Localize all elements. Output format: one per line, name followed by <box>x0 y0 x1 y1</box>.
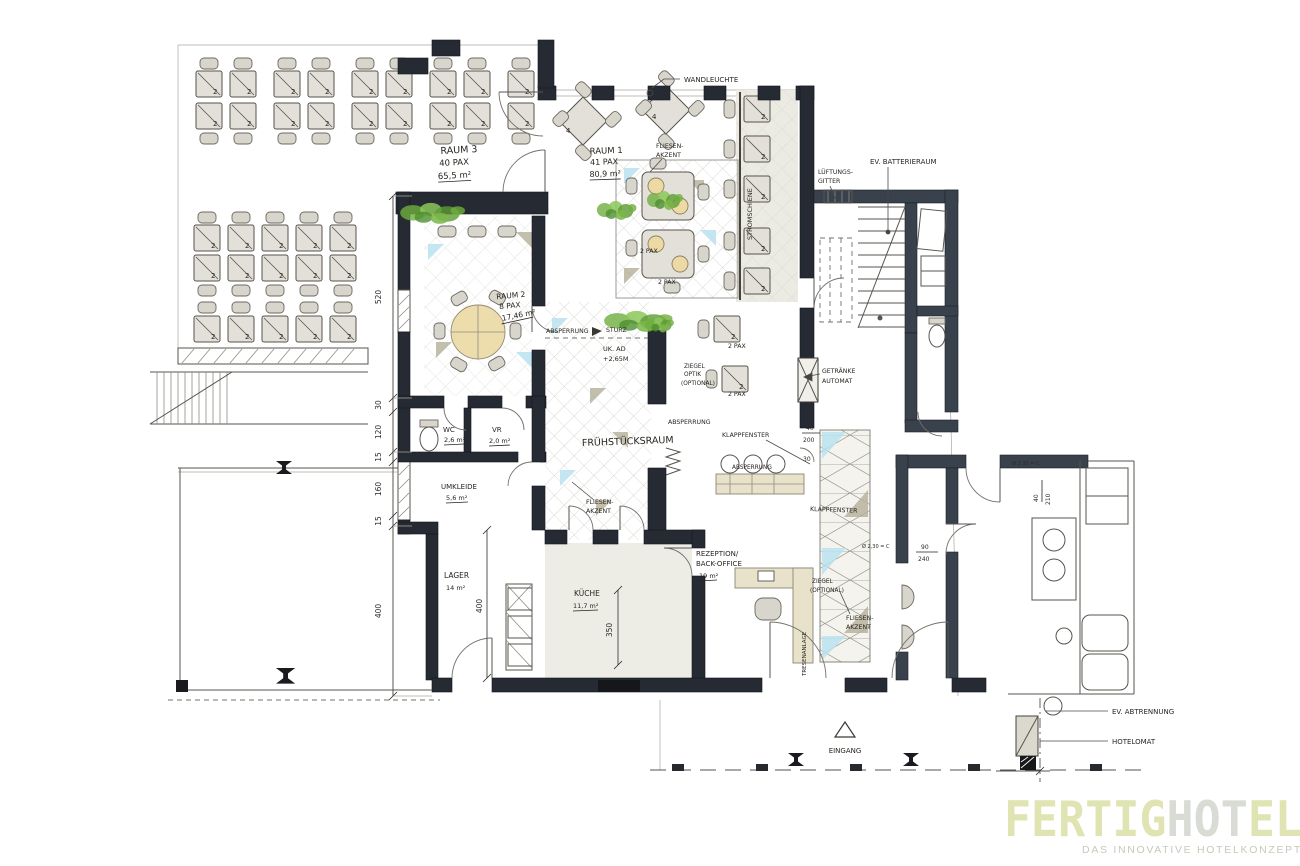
label-4pax: 4 <box>652 113 657 121</box>
label-ziegel-optik: OPTIK <box>684 372 701 378</box>
dim-chain-520: 520 <box>374 290 383 305</box>
label-klappfenster-2: KLAPPFENSTER <box>810 506 858 515</box>
room-umkleide-area: 5,6 m² <box>446 494 468 502</box>
label-getraenkeautomat: GETRÄNKE <box>822 366 855 375</box>
label-fliesen-akzent-3: FLIESEN- <box>846 615 873 622</box>
buffet-counter <box>716 455 804 494</box>
room-raum1-pax: 41 PAX <box>590 157 619 167</box>
label-ziegel-optik: (OPTIONAL) <box>681 381 715 387</box>
dim-door-40b: 40 <box>1033 494 1040 502</box>
label-uk-ad-value: +2,65M <box>603 355 629 363</box>
label-stromschiene: STROMSCHIENE <box>746 188 754 240</box>
dim-chain-120: 120 <box>374 425 383 440</box>
fertighotel-logo: FERTIGHOTEL DAS INNOVATIVE HOTELKONZEPT <box>980 797 1300 856</box>
entrance <box>650 722 1148 771</box>
label-absperrung-1: ABSPERRUNG <box>546 328 589 335</box>
lager-shelving <box>506 584 532 670</box>
room-rezeption-name: BACK-OFFICE <box>696 560 742 568</box>
logo-wordmark: FERTIGHOTEL <box>980 795 1300 844</box>
dim-ok230: Ø 2,30 = C <box>862 543 890 550</box>
room-lager-area: 14 m² <box>446 584 466 592</box>
room-raum3-pax: 40 PAX <box>439 157 469 169</box>
dim-chain-160: 160 <box>374 482 383 497</box>
label-fliesen-akzent-2: AKZENT <box>586 508 611 515</box>
room-raum2-pax: 8 PAX <box>499 300 521 311</box>
right-room-furniture <box>917 209 947 286</box>
label-batterieraum: EV. BATTERIERAUM <box>870 158 937 166</box>
room-kueche-name: KÜCHE <box>574 589 600 598</box>
coil-symbol <box>666 448 680 475</box>
raum3-hatch-wall <box>178 348 368 364</box>
label-2pax: 2 PAX <box>728 391 746 398</box>
optional-rooms <box>1008 461 1134 694</box>
label-lueftungsgitter: GITTER <box>818 178 841 185</box>
stairs <box>858 207 905 328</box>
label-fliesen-akzent-2: FLIESEN- <box>586 499 613 506</box>
batterieraum-dashed <box>820 238 852 322</box>
label-absperrung-3: ABSPERRUNG <box>732 465 772 471</box>
logo-hot: HOT <box>1167 791 1248 848</box>
label-uk-ad: UK. AD <box>603 345 626 353</box>
dim-lager-400: 400 <box>475 599 484 614</box>
logo-fertig: FERTIG <box>1004 791 1167 848</box>
logo-el: EL <box>1248 791 1300 848</box>
label-2pax: 2 PAX <box>658 279 676 286</box>
room-wc-name: WC <box>443 426 455 434</box>
label-wandleuchte: WANDLEUCHTE <box>684 76 738 84</box>
room-raum1-name: RAUM 1 <box>590 146 623 157</box>
room-vr-name: VR <box>492 426 502 434</box>
label-hotelomat: HOTELOMAT <box>1112 738 1156 746</box>
room-lager-name: LAGER <box>444 571 469 580</box>
label-fliesen-akzent: FLIESEN- <box>656 143 683 150</box>
label-getraenkeautomat: AUTOMAT <box>822 378 853 385</box>
label-absperrung-2: ABSPERRUNG <box>668 419 711 426</box>
dim-chain-15b: 15 <box>374 516 383 526</box>
dim-ok230: Ø 2,30 = C <box>1012 460 1040 467</box>
room-vr-area: 2,0 m² <box>489 437 511 445</box>
label-ziegel-optional: ZIEGEL <box>812 579 833 585</box>
exterior-stair <box>150 372 368 424</box>
terrace <box>168 461 440 700</box>
label-sturz: STURZ <box>606 327 627 334</box>
label-2pax: 2 PAX <box>640 248 658 255</box>
dim-kueche-350: 350 <box>605 623 614 638</box>
room-rezeption-area: 19 m² <box>699 572 719 580</box>
getraenkeautomat <box>798 358 818 402</box>
room-rezeption-name: REZEPTION/ <box>696 550 739 558</box>
room-raum1-area: 80,9 m² <box>589 169 621 179</box>
label-2pax: 2 PAX <box>728 343 746 350</box>
label-lueftungsgitter: LÜFTUNGS- <box>818 167 853 176</box>
floor-plan-page: 2 <box>0 0 1300 866</box>
dim-door-210: 210 <box>1045 493 1052 505</box>
label-klappfenster-1: KLAPPFENSTER <box>722 432 770 439</box>
dim-door-200: 200 <box>803 437 815 444</box>
label-eingang: EINGANG <box>829 747 862 755</box>
dim-door-90: 90 <box>921 544 929 551</box>
label-fliesen-akzent-3: AKZENT <box>846 624 871 631</box>
room-fruehstuecksraum: FRÜHSTÜCKSRAUM <box>582 435 674 449</box>
label-fliesen-akzent: AKZENT <box>656 152 681 159</box>
dim-door-40: 40 <box>806 425 814 432</box>
dim-chain-400: 400 <box>374 604 383 619</box>
room-raum3-name: RAUM 3 <box>440 144 477 157</box>
label-ziegel-optik: ZIEGEL <box>684 364 705 370</box>
dim-chain-30: 30 <box>374 400 383 410</box>
label-ev-abtrennung: EV. ABTRENNUNG <box>1112 708 1174 716</box>
label-ziegel-optional: (OPTIONAL) <box>810 588 844 594</box>
room-wc-area: 2,6 m² <box>444 436 466 444</box>
label-tresenanlage: TRESENANLAGE <box>802 631 808 677</box>
floor-plan-drawing: 2 <box>0 0 1300 866</box>
dim-door-240: 240 <box>918 556 930 563</box>
room-umkleide-name: UMKLEIDE <box>441 483 477 491</box>
label-4pax: 4 <box>566 127 571 135</box>
room-kueche-area: 11,7 m² <box>573 602 599 610</box>
dim-chain-15: 15 <box>374 452 383 462</box>
dim-door-30: 30 <box>803 456 811 463</box>
